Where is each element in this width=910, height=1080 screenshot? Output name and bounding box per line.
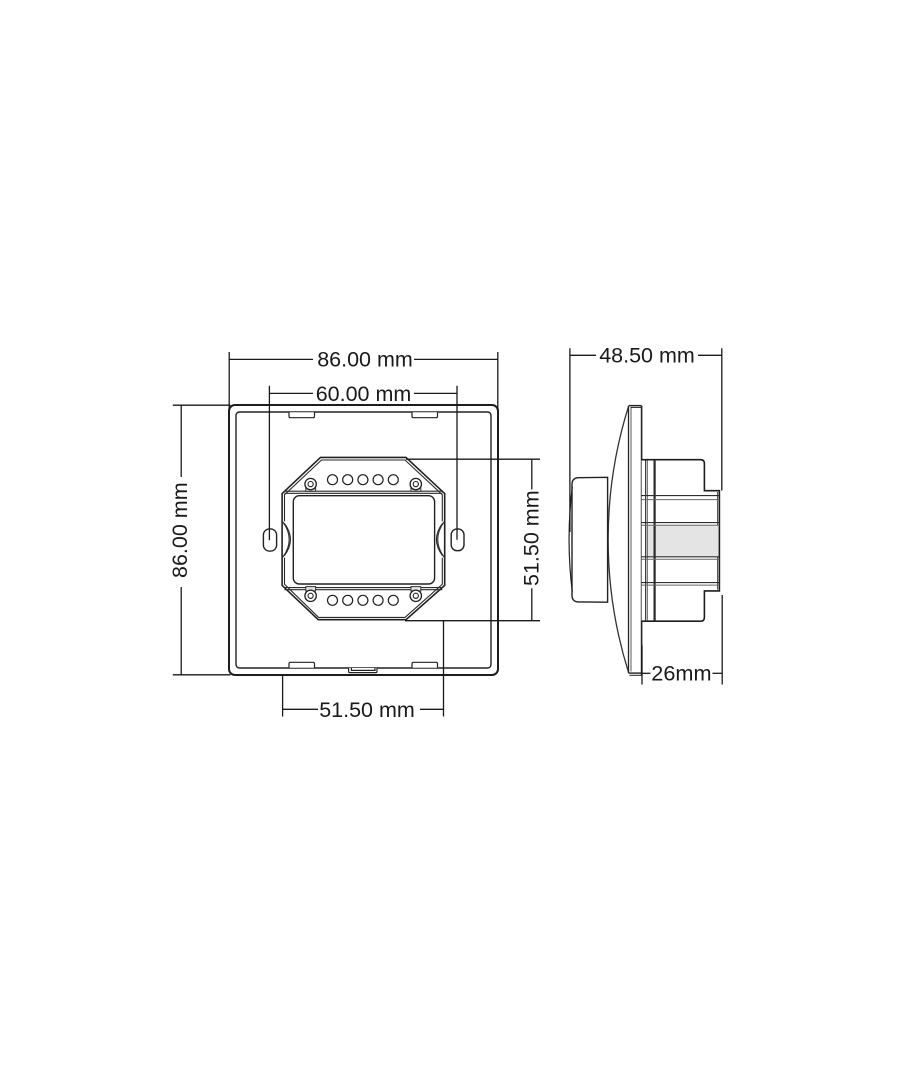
svg-text:60.00 mm: 60.00 mm: [316, 382, 412, 406]
svg-text:86.00 mm: 86.00 mm: [168, 482, 192, 578]
svg-text:86.00 mm: 86.00 mm: [317, 348, 413, 372]
svg-text:51.50 mm: 51.50 mm: [519, 490, 543, 586]
svg-text:48.50 mm: 48.50 mm: [599, 344, 695, 368]
svg-text:26mm: 26mm: [651, 661, 711, 686]
svg-text:51.50 mm: 51.50 mm: [319, 698, 415, 722]
